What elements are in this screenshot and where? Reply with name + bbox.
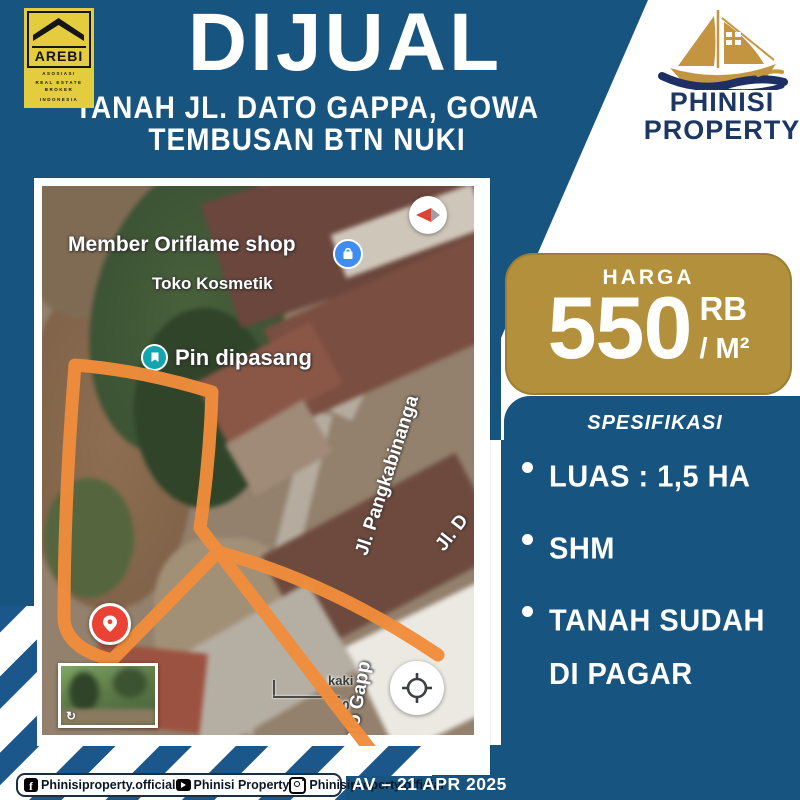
- saved-pin-icon[interactable]: [89, 603, 131, 645]
- compass-icon[interactable]: [409, 196, 447, 234]
- list-item: TANAH SUDAH DI PAGAR: [520, 595, 790, 697]
- flyer: DIJUAL TANAH JL. DATO GAPPA, GOWA TEMBUS…: [0, 0, 800, 800]
- arebi-logo: AREBI ASOSIASI REAL ESTATE BROKER INDONE…: [24, 8, 94, 108]
- specs-title: SPESIFIKASI: [520, 412, 790, 435]
- phinisi-logo-text: PHINISI PROPERTY: [640, 88, 800, 145]
- streetview-thumbnail[interactable]: ↻: [58, 663, 158, 728]
- instagram-icon: [289, 777, 306, 794]
- arebi-tagline-2: REAL ESTATE BROKER: [27, 80, 91, 94]
- price-badge: HARGA 550 RB / M²: [505, 253, 792, 395]
- price-unit-per-sqm: / M²: [699, 335, 749, 364]
- price-amount: 550: [548, 284, 692, 372]
- poi-pin-label: Pin dipasang: [175, 345, 312, 371]
- arebi-logo-name: AREBI: [32, 46, 86, 66]
- my-location-button[interactable]: [390, 661, 444, 715]
- spec-pagar: TANAH SUDAH DI PAGAR: [549, 595, 774, 702]
- page-title: DIJUAL: [0, 2, 690, 84]
- list-item: SHM: [520, 523, 790, 574]
- specs-list: LUAS : 1,5 HA SHM TANAH SUDAH DI PAGAR: [520, 451, 790, 696]
- youtube-icon: [176, 779, 191, 791]
- facebook-icon: f: [24, 778, 38, 792]
- arebi-roof-icon: [29, 15, 88, 41]
- poi-shop-label: Member Oriflame shop: [68, 233, 296, 257]
- phinisi-logo-line2: PROPERTY: [640, 116, 800, 144]
- facebook-handle-label: Phinisiproperty.official: [41, 778, 176, 792]
- list-item: LUAS : 1,5 HA: [520, 451, 790, 502]
- facebook-handle: f Phinisiproperty.official: [24, 778, 176, 792]
- bullet-icon: [522, 606, 533, 617]
- youtube-handle-label: Phinisi Property: [194, 778, 290, 792]
- bullet-icon: [522, 534, 533, 545]
- shop-pin-icon[interactable]: [333, 239, 363, 269]
- arebi-tagline-1: ASOSIASI: [27, 71, 91, 78]
- bullet-icon: [522, 462, 533, 473]
- price-unit-thousands: RB: [699, 292, 749, 325]
- arebi-logo-box: AREBI: [27, 11, 91, 68]
- phinisi-logo-line1: PHINISI: [640, 88, 800, 116]
- poi-shop-sublabel: Toko Kosmetik: [152, 274, 273, 294]
- subtitle-line2: TEMBUSAN BTN NUKI: [0, 122, 614, 158]
- social-bar: f Phinisiproperty.official Phinisi Prope…: [16, 773, 342, 797]
- youtube-handle: Phinisi Property: [176, 778, 290, 792]
- rotate-view-icon: ↻: [66, 709, 76, 723]
- arebi-tagline-3: INDONESIA: [27, 97, 91, 104]
- phinisi-ship-icon: [658, 6, 788, 90]
- streetview-tree: [69, 672, 99, 712]
- date-stamp: AV – 21 APR 2025: [352, 774, 507, 795]
- spec-luas: LUAS : 1,5 HA: [549, 451, 774, 504]
- spec-shm: SHM: [549, 523, 774, 576]
- streetview-tree: [113, 668, 147, 698]
- specs-panel: SPESIFIKASI LUAS : 1,5 HA SHM TANAH SUDA…: [504, 396, 800, 714]
- bookmark-pin-icon[interactable]: [141, 344, 168, 371]
